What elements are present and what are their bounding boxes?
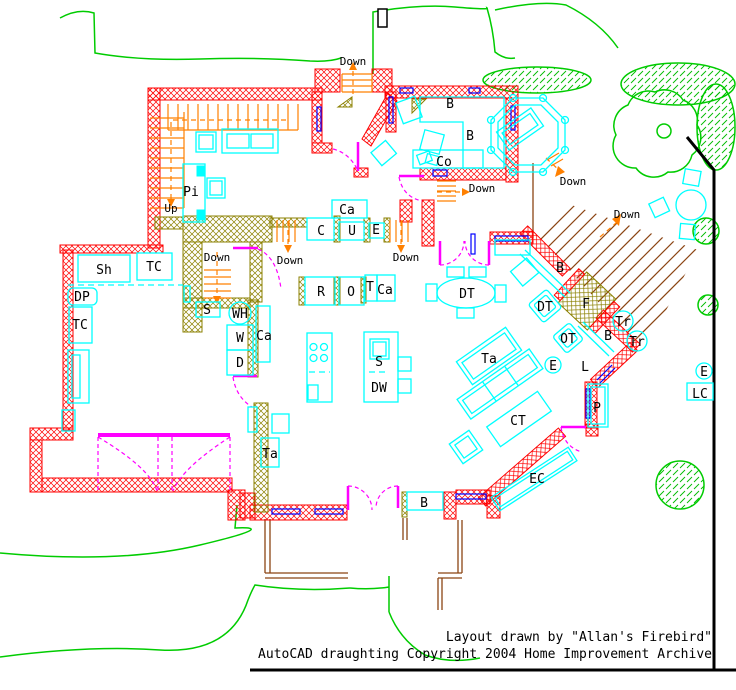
sofa [222, 129, 278, 153]
wall-hall-stub2 [422, 200, 434, 246]
dining-chair [447, 267, 464, 277]
olive-entry-corner [338, 97, 352, 107]
label-e-hall: E [372, 223, 380, 238]
stove [307, 333, 332, 402]
wall-bottom-step [444, 492, 456, 519]
label-dryer: D [236, 356, 244, 371]
label-cabinet-kitchen: Ca [377, 283, 393, 298]
label-down-basement: Down [204, 251, 231, 264]
footer-credit-line: Layout drawn by "Allan's Firebird" [446, 630, 712, 645]
burner [321, 355, 328, 362]
label-refrigerator: R [317, 285, 325, 300]
label-table-1: Ta [481, 352, 497, 367]
burner [321, 344, 328, 351]
label-lounge-chair: LC [692, 387, 708, 402]
label-bookshelf-1: B [446, 97, 454, 112]
label-bench: B [420, 496, 428, 511]
dining-chair [426, 284, 437, 301]
label-bookshelf-4: B [604, 329, 612, 344]
floor-plan-drawing: Down Down Down Down Down Down Down Up Pi… [0, 0, 736, 690]
porch-stringer-right [438, 520, 462, 610]
label-lamp-e2: E [700, 365, 708, 380]
bush-right-3 [656, 461, 704, 509]
label-washer: W [236, 331, 244, 346]
label-closet-c: C [317, 224, 325, 239]
label-down-gazebo: Down [560, 175, 587, 188]
label-end-table-e1: E [549, 359, 557, 374]
lawn-line-top-left [60, 11, 341, 61]
dining-french-doors [440, 241, 489, 265]
olive-core-left [183, 242, 202, 332]
deck [265, 140, 736, 610]
lawn-line-top-right [495, 3, 618, 48]
laundry-door-swing [233, 377, 252, 407]
label-computer: Co [436, 155, 452, 170]
label-dishwasher: DW [371, 381, 387, 396]
wall-living-top [148, 88, 322, 100]
olive-stub-3 [384, 218, 390, 242]
label-dt-small: DT [537, 300, 553, 315]
olive-core-top [183, 216, 272, 242]
footer-copyright-line: AutoCAD draughting Copyright 2004 Home I… [258, 647, 712, 662]
patio-table [676, 190, 706, 220]
wall-garage-east [228, 490, 245, 520]
label-oven: O [347, 285, 355, 300]
label-down-entry: Down [340, 55, 367, 68]
chair-by-strip [272, 414, 289, 433]
patio-chair [649, 197, 670, 217]
label-occasional-table: OT [560, 332, 576, 347]
label-tree-2: Tr [629, 335, 645, 350]
office-door-swing [399, 177, 422, 201]
stair-office-steps [437, 181, 456, 201]
stair-main-top [168, 104, 298, 130]
great-room-sofa [457, 349, 543, 419]
label-utility: U [348, 224, 356, 239]
label-coffee-table: CT [510, 414, 526, 429]
label-piano: Pi [183, 185, 199, 200]
wall-bottom-right [456, 490, 490, 504]
stair-entry-steps [342, 74, 372, 92]
dining-chair [495, 285, 506, 302]
porch-stringer-left [265, 519, 348, 578]
stool [398, 379, 411, 393]
corner-chair [511, 258, 539, 286]
label-dining-table: DT [459, 287, 475, 302]
label-down-mid: Down [277, 254, 304, 267]
patio-chair [683, 169, 701, 187]
olive-counter-1 [299, 277, 305, 305]
label-cabinet-pantry: Ca [339, 203, 355, 218]
stool [398, 357, 411, 371]
front-door-swing [333, 149, 357, 169]
garden-line-left [0, 505, 251, 557]
stair-deck-guide [600, 223, 616, 237]
burner [310, 355, 317, 362]
lawn-line-top-center [373, 6, 515, 74]
property-line [250, 9, 736, 670]
label-entertainment-center: EC [529, 472, 545, 487]
label-tc-1: TC [146, 260, 162, 275]
label-closet-s: S [203, 303, 211, 318]
stair-arrow-mid [284, 245, 292, 253]
label-lamp: L [581, 360, 589, 375]
porch-post [403, 518, 407, 540]
label-dp: DP [74, 290, 90, 305]
dining-chair [469, 267, 486, 277]
label-cabinet-laundry: Ca [256, 329, 272, 344]
tree-trunk [657, 124, 671, 138]
label-fireplace: F [582, 297, 590, 312]
floor-plan-canvas: Down Down Down Down Down Down Down Up Pi… [0, 0, 736, 690]
gazebo-outer [491, 98, 565, 172]
courtyard-french-doors [348, 486, 398, 510]
olive-core-right [250, 242, 262, 302]
footer: Layout drawn by "Allan's Firebird" AutoC… [258, 630, 712, 662]
label-table-2: Ta [262, 447, 278, 462]
wall-entry-jamb [354, 168, 368, 177]
dining-french-swing [440, 241, 489, 265]
courtyard-french-swing [348, 486, 398, 510]
wall-diag-d [478, 428, 565, 506]
piano-end-cap [197, 210, 204, 220]
label-trash: T [366, 280, 374, 295]
label-down-deck: Down [614, 208, 641, 221]
wall-entry-pillar-left [315, 69, 340, 92]
wall-garage-west [30, 440, 42, 492]
dining-chair [457, 308, 474, 318]
label-sink: S [375, 355, 383, 370]
end-table [449, 430, 482, 463]
wall-hall-stub1 [400, 200, 412, 222]
office-chair [371, 140, 396, 165]
wall-entry-stub [312, 143, 332, 153]
label-water-heater: WH [232, 307, 248, 322]
label-down-office: Down [469, 182, 496, 195]
label-tc-2: TC [72, 318, 88, 333]
living-room-furniture [183, 129, 278, 222]
label-bookshelf-2: B [466, 129, 474, 144]
window-hall-east [471, 234, 475, 254]
label-up: Up [164, 202, 177, 215]
stair-right-steps [390, 220, 408, 242]
gate-post [378, 9, 387, 27]
olive-office-corner [412, 99, 426, 113]
label-shelf: Sh [96, 263, 112, 278]
west-room-furniture [62, 253, 190, 431]
label-tree-1: Tr [615, 315, 631, 330]
wall-garage-bottom [42, 478, 232, 492]
wall-westroom-top [60, 245, 163, 253]
olive-pillar-bottom [402, 492, 407, 517]
burner [310, 344, 317, 351]
olive-living-band [155, 217, 183, 229]
patio-door-swing [561, 427, 582, 452]
label-bookshelf-3: B [556, 261, 564, 276]
piano-end-cap [197, 166, 204, 176]
label-planter-p: P [593, 401, 601, 416]
label-down-hall: Down [393, 251, 420, 264]
